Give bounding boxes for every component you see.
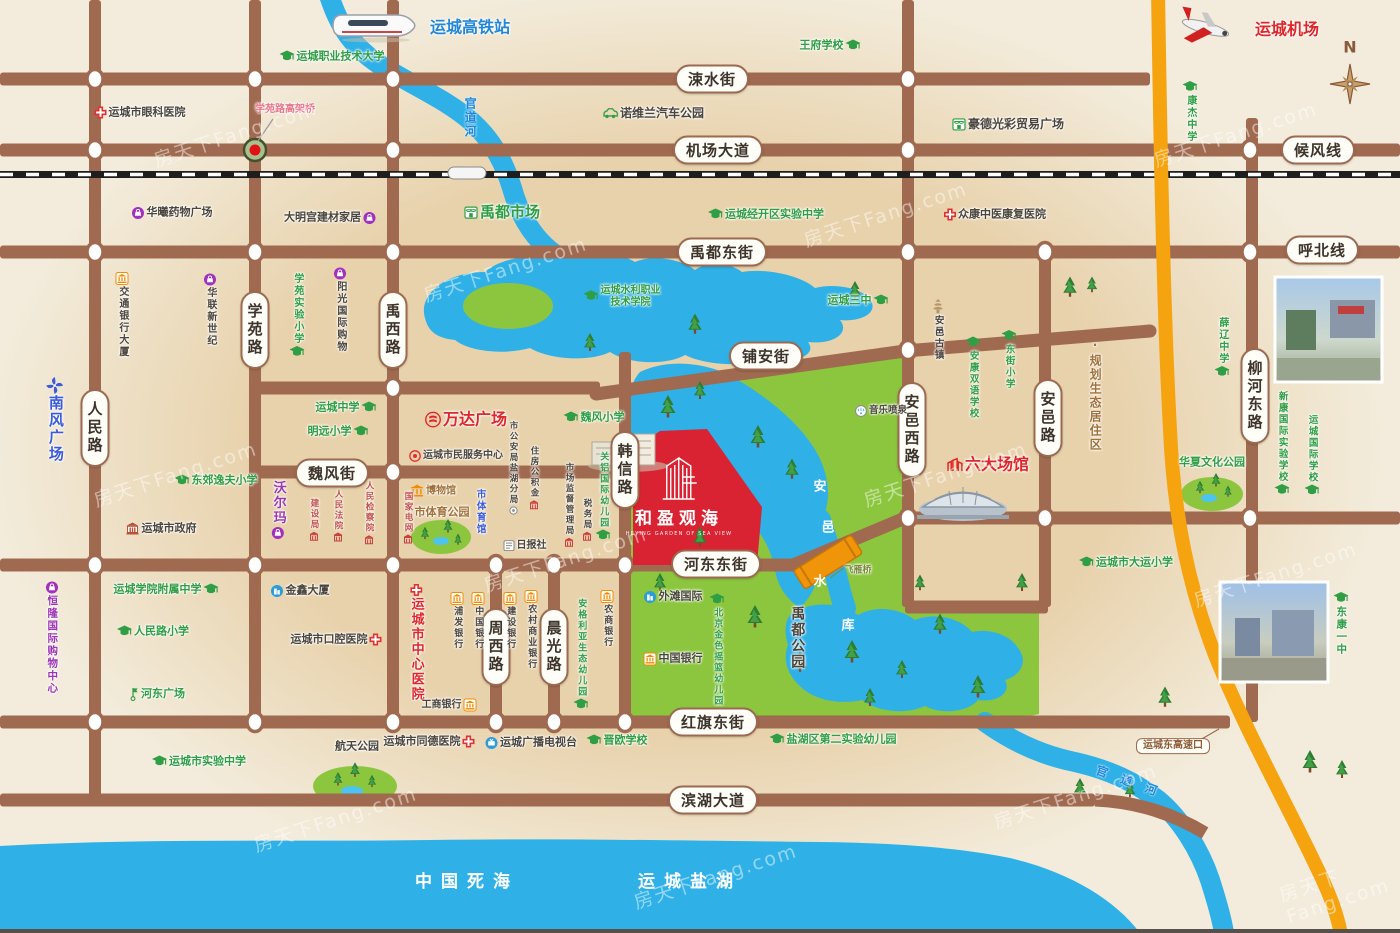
cap-icon xyxy=(846,40,861,53)
cap-icon xyxy=(574,699,589,712)
shop-icon xyxy=(46,581,59,594)
poi: 运城中学 xyxy=(316,402,377,415)
road-label: 安邑西路 xyxy=(898,382,927,478)
road-label: 晨光路 xyxy=(540,608,569,686)
poi: 外滩国际 xyxy=(644,591,703,604)
poi-text: 华夏文化公园 xyxy=(1179,457,1245,470)
road-label: 呼北线 xyxy=(1285,236,1359,265)
poi-text: 大明宫建材家居 xyxy=(284,212,361,225)
redb-icon xyxy=(333,533,343,543)
intersection-circle xyxy=(385,141,401,160)
intersection-circle xyxy=(546,713,562,732)
poi: 工商银行 xyxy=(422,699,477,712)
poi-text: 盐湖区第二实验幼儿园 xyxy=(787,734,897,747)
pagoda-icon xyxy=(932,299,945,314)
poi-text: 运城市大运小学 xyxy=(1096,557,1173,570)
poi: 学苑路高架桥 xyxy=(255,104,315,116)
poi: 禹都公园 xyxy=(789,606,806,670)
poi-text: 外滩国际 xyxy=(659,591,703,604)
poi: 东郊逸夫小学 xyxy=(175,475,258,488)
poi-text: 安格利亚生态幼儿园 xyxy=(576,599,587,698)
bldg-icon xyxy=(271,585,284,598)
poi: 交通银行大厦 xyxy=(116,272,129,358)
poi-text: 康杰中学 xyxy=(1184,95,1196,143)
poi-text: 国家电网 xyxy=(403,492,413,534)
poi-text: 市场监督管理局 xyxy=(564,463,574,537)
intersection-circle xyxy=(1242,509,1258,528)
road-label: 红旗东街 xyxy=(668,708,758,737)
poi: 运城市政府 xyxy=(126,523,197,536)
poi: 恒隆国际购物中心 xyxy=(46,581,59,695)
poi: 运城职业技术大学 xyxy=(280,51,385,64)
poi-text: 航天公园 xyxy=(335,741,379,754)
cap-icon xyxy=(708,209,723,222)
poi: 市体育馆 xyxy=(474,489,485,535)
cap-icon xyxy=(1002,330,1017,343)
poi: 运城市同德医院 xyxy=(384,736,475,749)
poi: 安 xyxy=(813,479,826,494)
poi-text: 豪德光彩贸易广场 xyxy=(968,117,1064,131)
poi: 运城高铁站 xyxy=(430,19,510,38)
cap-icon xyxy=(584,291,599,304)
road-label: 魏风街 xyxy=(295,459,369,488)
poi-text: 住房公积金 xyxy=(529,446,539,499)
poi-text: 人民路小学 xyxy=(134,626,189,639)
poi-text: 关铝国际幼儿园 xyxy=(598,452,609,529)
road-label: 学苑路 xyxy=(241,291,270,369)
poi: 金鑫大厦 xyxy=(271,585,330,598)
poi-text: 河东广场 xyxy=(141,688,185,701)
poi: 运城三中 xyxy=(828,295,889,308)
road-label: 禹西路 xyxy=(379,291,408,369)
road-segment xyxy=(0,73,1150,86)
poi: 众康中医康复医院 xyxy=(944,209,1046,222)
poi-text: 运城广播电视台 xyxy=(500,737,577,750)
poi-text: 明远小学 xyxy=(308,426,352,439)
poi: 市体育公园 xyxy=(415,507,470,520)
redb-icon xyxy=(364,535,374,545)
project-subtitle: HEYING GARDEN OF SEA VIEW xyxy=(626,531,733,537)
poi-text: 库 xyxy=(841,618,854,633)
bank-icon xyxy=(504,592,517,605)
redbuilding-icon xyxy=(947,458,963,472)
np-icon xyxy=(504,540,515,551)
poi-text: 市体育公园 xyxy=(415,507,470,520)
project-name: 和盈观海 xyxy=(635,504,723,529)
intersection-circle xyxy=(900,341,916,360)
railway-train-icon xyxy=(448,167,486,179)
market-icon xyxy=(952,118,966,131)
intersection-circle xyxy=(87,141,103,160)
poi-text: 人民法院 xyxy=(333,490,343,532)
poi-text: 北京金色摇篮幼儿园 xyxy=(712,608,723,707)
intersection-circle xyxy=(1242,243,1258,262)
poi: ·规划生态居住区 xyxy=(1088,338,1102,452)
cap-icon xyxy=(175,475,190,488)
intersection-circle xyxy=(900,141,916,160)
poi: 国家电网 xyxy=(403,492,413,545)
poi-text: 运城市同德医院 xyxy=(384,736,461,749)
huaxia-park-pond xyxy=(1201,494,1217,502)
gov-icon xyxy=(126,523,140,536)
redb-icon xyxy=(582,531,592,541)
poi-text: 运城市口腔医院 xyxy=(291,634,368,647)
poi: 人民路小学 xyxy=(117,626,189,639)
road-label: 安邑路 xyxy=(1034,379,1063,457)
road-label: 机场大道 xyxy=(673,136,763,165)
poi: 建设银行 xyxy=(504,592,517,650)
tv-icon xyxy=(485,737,498,750)
redb-icon xyxy=(529,500,539,510)
poi: 魏风小学 xyxy=(564,412,625,425)
road-segment xyxy=(253,382,600,395)
cap-icon xyxy=(1215,366,1230,379)
poi-text: 东郊逸夫小学 xyxy=(192,475,258,488)
cap-icon xyxy=(290,346,305,359)
poi-text: 华联新世纪 xyxy=(204,287,216,347)
poi: 博物馆 xyxy=(410,485,456,498)
salt-lake-water xyxy=(0,839,1140,933)
shop-icon xyxy=(334,267,347,280)
poi-text: 邑 xyxy=(821,520,834,535)
market-icon xyxy=(464,207,478,220)
poi-text: 禹都市场 xyxy=(480,204,540,222)
poi: 运城国际学校 xyxy=(1305,415,1320,498)
poi: 市公安局盐湖分局 xyxy=(508,421,518,515)
poi: 水 xyxy=(813,574,826,589)
poi: 南风广场 xyxy=(46,377,64,463)
poi: 运城市眼科医院 xyxy=(95,107,186,120)
poi: 新康国际实验学校 xyxy=(1275,391,1290,497)
poi-text: ·规划生态居住区 xyxy=(1088,338,1102,452)
poi: 豪德光彩贸易广场 xyxy=(952,117,1064,131)
poi-text: 运城水利职业 技术学院 xyxy=(601,285,661,309)
poi-text: 水 xyxy=(813,574,826,589)
poi-text: 新康国际实验学校 xyxy=(1276,391,1287,483)
poi-text: 税务局 xyxy=(582,499,592,531)
road-segment xyxy=(0,794,1095,807)
poi: 农商银行 xyxy=(601,590,614,648)
bank-icon xyxy=(472,592,485,605)
poi-text: 王府学校 xyxy=(800,40,844,53)
intersection-circle xyxy=(900,70,916,89)
intersection-circle xyxy=(87,243,103,262)
project-marker: 和盈观海 HEYING GARDEN OF SEA VIEW xyxy=(626,451,733,537)
poi: 建设局 xyxy=(309,499,319,542)
cap-icon xyxy=(1305,485,1320,498)
intersection-circle xyxy=(247,243,263,262)
intersection-circle xyxy=(488,556,504,575)
cross-icon xyxy=(370,634,382,646)
road-label: 禹都东街 xyxy=(677,238,767,267)
shop-icon xyxy=(204,273,217,286)
road-label: 涑水街 xyxy=(675,65,749,94)
poi-text: 众康中医康复医院 xyxy=(958,209,1046,222)
flag-icon xyxy=(127,687,139,701)
cap-icon xyxy=(564,412,579,425)
poi-text: 运城职业技术大学 xyxy=(297,51,385,64)
poi-text: 禹都公园 xyxy=(789,606,806,670)
poi: 王府学校 xyxy=(800,40,861,53)
poi: 六大场馆 xyxy=(947,456,1029,475)
poi-text: 运城机场 xyxy=(1255,21,1319,40)
poi: 运城机场 xyxy=(1255,21,1319,40)
intersection-circle xyxy=(385,713,401,732)
intersection-circle xyxy=(385,556,401,575)
intersection-circle xyxy=(385,70,401,89)
poi: 运城市口腔医院 xyxy=(291,634,382,647)
poi: 学苑实验小学 xyxy=(290,273,305,359)
poi-text: 运城三中 xyxy=(828,295,872,308)
poi-text: 薛辽中学 xyxy=(1216,317,1228,365)
cap-icon xyxy=(770,734,785,747)
intersection-circle xyxy=(546,556,562,575)
poi-text: 市体育馆 xyxy=(474,489,485,535)
compass-north-label: N xyxy=(1343,38,1356,57)
wanda-icon xyxy=(425,412,441,428)
poi: 中国死海 xyxy=(415,872,519,892)
cap-icon xyxy=(280,51,295,64)
poi-text: 安 xyxy=(813,479,826,494)
intersection-circle xyxy=(900,509,916,528)
poi: 运城水利职业 技术学院 xyxy=(584,285,661,309)
cap-icon xyxy=(587,735,602,748)
poi: 明远小学 xyxy=(308,426,369,439)
poi-text: 中国银行 xyxy=(473,606,484,650)
poi-text: 运城高铁站 xyxy=(430,19,510,38)
intersection-circle xyxy=(87,556,103,575)
poi-text: 运城市中心医院 xyxy=(408,597,423,702)
poi-text: 音乐喷泉 xyxy=(869,405,907,416)
cross-icon xyxy=(463,736,475,748)
intersection-circle xyxy=(488,713,504,732)
poi: 北京金色摇篮幼儿园 xyxy=(710,594,725,707)
poi-text: 万达广场 xyxy=(443,411,507,430)
poi: 华联新世纪 xyxy=(204,273,217,347)
cross-icon xyxy=(95,107,107,119)
poi: 航天公园 xyxy=(335,741,379,754)
cap-icon xyxy=(1275,484,1290,497)
poi-text: 日报社 xyxy=(517,540,547,552)
poi: 运城盐湖 xyxy=(638,872,742,892)
dot-icon xyxy=(508,506,517,515)
cap-icon xyxy=(1334,592,1349,605)
poi: 运城市实验中学 xyxy=(152,756,246,769)
bank-icon xyxy=(644,653,657,666)
poi-text: 市公安局盐湖分局 xyxy=(508,421,518,505)
campus-photo-1 xyxy=(1275,277,1382,382)
car-icon xyxy=(602,107,618,119)
cap-icon xyxy=(874,295,889,308)
poi: 中国银行 xyxy=(472,592,485,650)
poi: 盐湖区第二实验幼儿园 xyxy=(770,734,897,747)
intersection-circle xyxy=(617,556,633,575)
bank-icon xyxy=(116,272,129,285)
bank-icon xyxy=(451,592,464,605)
cap-icon xyxy=(204,584,219,597)
cap-icon xyxy=(710,594,725,607)
poi: 运城学院附属中学 xyxy=(114,584,219,597)
bottom-edge xyxy=(0,929,1400,933)
poi: 华曦药物广场 xyxy=(132,207,213,220)
poi: 运城广播电视台 xyxy=(485,737,577,750)
redb-icon xyxy=(403,535,413,545)
intersection-circle xyxy=(87,70,103,89)
poi-text: 飞雁桥 xyxy=(844,566,871,577)
poi-text: 六大场馆 xyxy=(965,456,1029,475)
poi: 阳光国际购物 xyxy=(334,267,347,353)
cap-icon xyxy=(152,756,167,769)
poi-text: 运城市实验中学 xyxy=(169,756,246,769)
poi-text: 阳光国际购物 xyxy=(334,281,346,353)
poi: 大明宫建材家居 xyxy=(284,212,376,225)
poi-text: 金鑫大厦 xyxy=(286,585,330,598)
poi-text: 运城市政府 xyxy=(142,523,197,536)
redb-icon xyxy=(309,531,319,541)
bank-icon xyxy=(464,699,477,712)
poi: 人民检察院 xyxy=(364,481,374,545)
redb-icon xyxy=(564,537,574,547)
poi: 飞雁桥 xyxy=(844,566,871,577)
road-label: 柳河东路 xyxy=(1241,348,1270,444)
poi-text: 运城中学 xyxy=(316,402,360,415)
bank-icon xyxy=(601,590,614,603)
intersection-circle xyxy=(1242,141,1258,160)
poi-text: 建设银行 xyxy=(505,606,516,650)
project-logo-icon xyxy=(658,451,700,501)
poi: 晋欧学校 xyxy=(587,735,648,748)
poi: 安邑古镇 xyxy=(932,299,945,361)
poi-text: 东街小学 xyxy=(1003,344,1014,390)
cap-icon xyxy=(596,530,611,543)
poi: 运城市大运小学 xyxy=(1079,557,1173,570)
poi: 安康双语学校 xyxy=(966,337,981,420)
poi-text: 学苑路高架桥 xyxy=(255,104,315,116)
poi-text: 华曦药物广场 xyxy=(147,207,213,220)
cross-icon xyxy=(944,209,956,221)
poi: 人民法院 xyxy=(333,490,343,543)
pinwheel-icon xyxy=(47,377,64,394)
map-canvas[interactable]: 和盈观海 HEYING GARDEN OF SEA VIEW N 运城高铁站运城… xyxy=(0,0,1400,933)
poi-text: 运城盐湖 xyxy=(638,872,742,892)
poi-text: 建设局 xyxy=(309,499,319,531)
poi-text: 安康双语学校 xyxy=(967,351,978,420)
poi-text: 南风广场 xyxy=(46,395,64,463)
poi: 河东广场 xyxy=(127,687,185,701)
poi: 运城市中心医院 xyxy=(408,584,423,702)
road-segment xyxy=(905,601,1048,614)
cap-icon xyxy=(1079,557,1094,570)
intersection-circle xyxy=(247,70,263,89)
shop-icon xyxy=(132,207,145,220)
cap-icon xyxy=(362,402,377,415)
cap-icon xyxy=(117,626,132,639)
road-label: 河东东街 xyxy=(671,550,761,579)
lake-island xyxy=(463,283,553,329)
poi: 安格利亚生态幼儿园 xyxy=(574,599,589,712)
poi: 市场监督管理局 xyxy=(564,463,574,548)
poi-text: 沃尔玛 xyxy=(270,481,285,526)
poi-text: 农商银行 xyxy=(602,604,613,648)
poi-text: 运城市民服务中心 xyxy=(423,450,503,462)
poi: 中国银行 xyxy=(644,653,703,666)
poi-text: 工商银行 xyxy=(422,699,462,711)
poi: 运城东高速口 xyxy=(1136,738,1210,754)
intersection-circle xyxy=(900,243,916,262)
poi: 万达广场 xyxy=(425,411,507,430)
poi-text: 安邑古镇 xyxy=(932,315,943,361)
poi: 官道河 xyxy=(463,97,477,139)
poi-text: 学苑实验小学 xyxy=(291,273,303,345)
poi: 康杰中学 xyxy=(1183,81,1198,143)
road-segment xyxy=(619,352,631,722)
intersection-circle xyxy=(385,463,401,482)
poi: 薛辽中学 xyxy=(1215,317,1230,379)
poi: 沃尔玛 xyxy=(270,481,285,540)
road-label: 滨湖大道 xyxy=(668,786,758,815)
intersection-circle xyxy=(247,713,263,732)
cap-icon xyxy=(1183,81,1198,94)
poi-text: 诺维兰汽车公园 xyxy=(620,106,704,120)
serving-icon xyxy=(409,450,421,462)
sports-park-pond xyxy=(433,537,449,545)
poi: 东街小学 xyxy=(1002,330,1017,390)
poi: 禹都市场 xyxy=(464,204,540,222)
poi-text: 运城国际学校 xyxy=(1306,415,1317,484)
huaxia-park-area xyxy=(1181,477,1243,511)
cross-icon xyxy=(410,584,422,596)
intersection-circle xyxy=(247,556,263,575)
poi: 库 xyxy=(841,618,854,633)
intersection-circle xyxy=(617,713,633,732)
poi-text: 交通银行大厦 xyxy=(116,286,128,358)
poi: 东康一中 xyxy=(1334,592,1349,656)
poi-text: 运城学院附属中学 xyxy=(114,584,202,597)
poi: 浦发银行 xyxy=(451,592,464,650)
shop-icon xyxy=(271,527,284,540)
overpass-marker xyxy=(244,139,266,161)
poi: 音乐喷泉 xyxy=(855,405,907,417)
intersection-circle xyxy=(385,379,401,398)
cap-icon xyxy=(966,337,981,350)
bank-icon xyxy=(525,590,538,603)
poi: 税务局 xyxy=(582,499,592,542)
poi: 华夏文化公园 xyxy=(1179,457,1245,470)
poi: 运城市民服务中心 xyxy=(409,450,503,462)
poi-text: 晋欧学校 xyxy=(604,735,648,748)
poi: 关铝国际幼儿园 xyxy=(596,452,611,543)
road-segment xyxy=(0,716,1230,729)
shop-icon xyxy=(363,212,376,225)
poi-text: 人民检察院 xyxy=(364,481,374,534)
poi: 农村商业银行 xyxy=(525,590,538,670)
cap-icon xyxy=(354,426,369,439)
intersection-circle xyxy=(1037,509,1053,528)
poi-text: 魏风小学 xyxy=(581,412,625,425)
fountain-icon xyxy=(855,405,867,417)
intersection-circle xyxy=(385,243,401,262)
road-label: 候风线 xyxy=(1281,136,1355,165)
bldg-icon xyxy=(644,591,657,604)
poi: 住房公积金 xyxy=(529,446,539,510)
road-label: 铺安街 xyxy=(729,342,803,371)
poi: 日报社 xyxy=(504,540,547,552)
poi-text: 运城经开区实验中学 xyxy=(725,209,824,222)
poi-text: 官道河 xyxy=(463,97,477,139)
intersection-circle xyxy=(87,713,103,732)
poi-text: 运城东高速口 xyxy=(1143,740,1203,752)
poi-text: 恒隆国际购物中心 xyxy=(46,595,58,695)
